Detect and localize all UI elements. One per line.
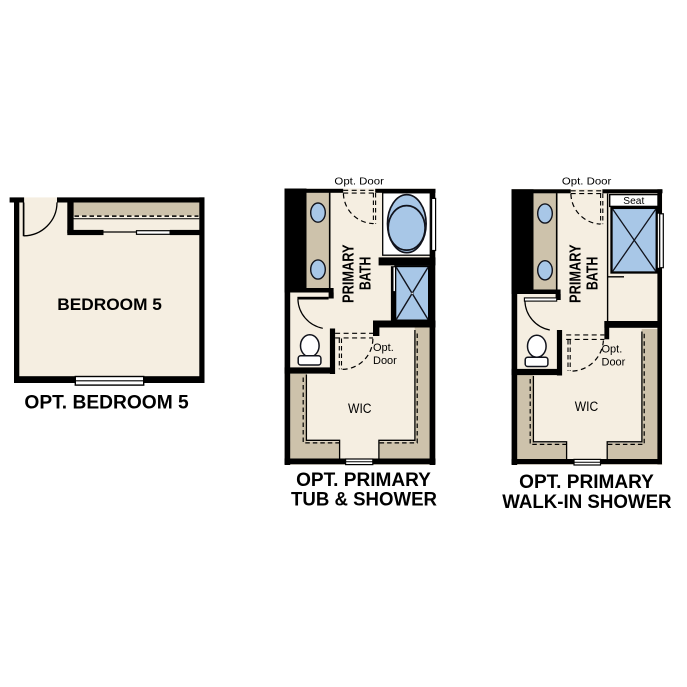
svg-text:Opt.: Opt. — [373, 342, 394, 354]
svg-text:Opt. Door: Opt. Door — [562, 176, 612, 188]
svg-text:Opt. Door: Opt. Door — [334, 175, 384, 187]
svg-text:WIC: WIC — [348, 401, 372, 416]
svg-text:OPT. BEDROOM 5: OPT. BEDROOM 5 — [24, 392, 189, 413]
svg-text:BEDROOM 5: BEDROOM 5 — [57, 296, 162, 314]
svg-text:OPT. PRIMARY: OPT. PRIMARY — [296, 470, 431, 491]
svg-text:BATH: BATH — [357, 257, 374, 291]
svg-text:PRIMARY: PRIMARY — [568, 244, 585, 303]
svg-text:TUB & SHOWER: TUB & SHOWER — [291, 490, 437, 511]
svg-text:WALK-IN SHOWER: WALK-IN SHOWER — [502, 492, 672, 513]
svg-text:Seat: Seat — [623, 196, 644, 207]
svg-text:Opt.: Opt. — [602, 343, 623, 355]
svg-text:Door: Door — [373, 355, 397, 367]
svg-text:BATH: BATH — [584, 257, 601, 291]
svg-text:OPT. PRIMARY: OPT. PRIMARY — [519, 472, 654, 493]
svg-text:Door: Door — [602, 356, 626, 368]
svg-text:PRIMARY: PRIMARY — [341, 244, 358, 303]
svg-text:WIC: WIC — [575, 399, 599, 414]
